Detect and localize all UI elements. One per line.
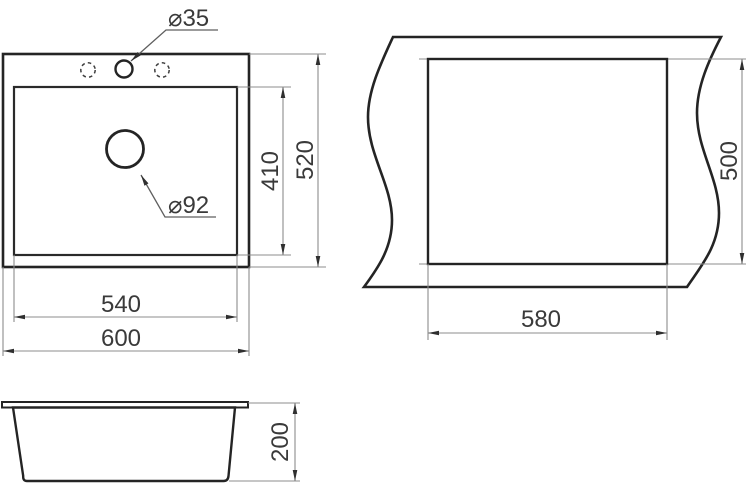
sink-top-view: ⌀35 ⌀92 410 520 540 600 [3, 5, 326, 356]
sink-side-view: 200 [2, 402, 300, 481]
dim-label-drain-hole: ⌀92 [168, 192, 209, 219]
dim-label-inner-depth: 410 [257, 151, 284, 191]
dim-label-outer-width: 600 [101, 325, 141, 352]
dim-label-side-height: 200 [267, 422, 294, 462]
technical-drawing: ⌀35 ⌀92 410 520 540 600 [0, 0, 748, 488]
sink-side-body [13, 408, 235, 482]
dim-label-cutout-width: 580 [521, 306, 561, 333]
dim-label-faucet-hole: ⌀35 [168, 5, 209, 32]
dim-label-cutout-depth: 500 [716, 141, 743, 181]
dim-label-inner-width: 540 [101, 291, 141, 318]
drain-hole [107, 131, 144, 168]
faucet-hole [116, 61, 133, 78]
dim-label-outer-depth: 520 [292, 140, 319, 180]
drawing-canvas: ⌀35 ⌀92 410 520 540 600 [0, 0, 748, 488]
countertop-cutout-view: 500 580 [364, 37, 746, 340]
